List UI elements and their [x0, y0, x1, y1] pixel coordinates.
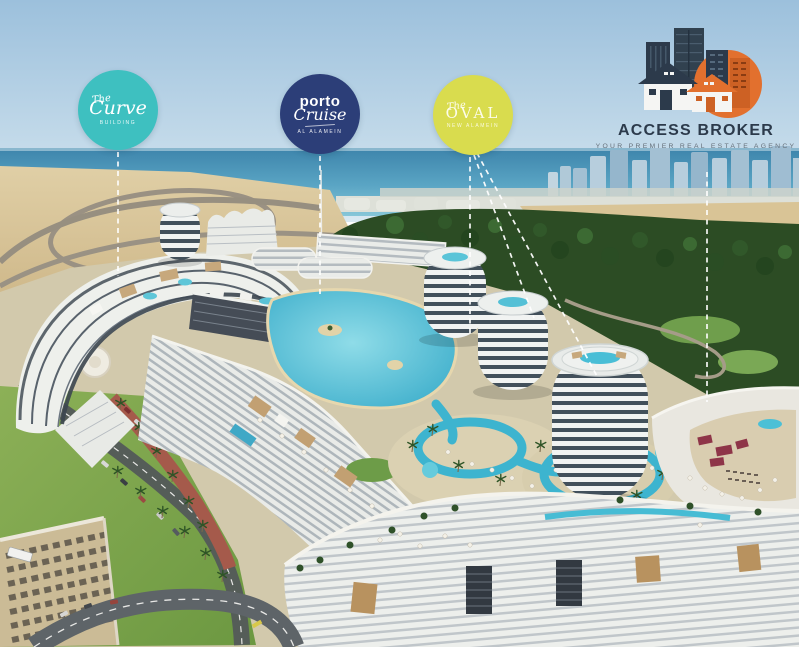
access-broker-logo: ACCESS BROKER YOUR PREMIER REAL ESTATE A…	[600, 26, 792, 150]
broker-logo-graphic	[616, 26, 776, 126]
badge-curve-sub: BUILDING	[100, 121, 136, 126]
badge-porto-sub: AL ALAMEIN	[298, 130, 343, 135]
badge-porto-rule	[305, 123, 335, 126]
badge-porto-line2: Cruise	[294, 107, 347, 123]
marketing-image: The Curve BUILDING porto Cruise AL ALAME…	[0, 0, 799, 647]
broker-logo-title: ACCESS BROKER	[618, 122, 774, 140]
badge-the-curve: The Curve BUILDING	[78, 70, 158, 150]
broker-logo-tagline: YOUR PREMIER REAL ESTATE AGENCY	[596, 143, 797, 150]
badge-oval-pre: The	[447, 100, 467, 113]
badge-porto-cruise: porto Cruise AL ALAMEIN	[280, 74, 360, 154]
badge-curve-pre: The	[92, 93, 112, 106]
badge-the-oval: The OVAL NEW ALAMEIN	[433, 75, 513, 155]
badge-oval-sub: NEW ALAMEIN	[447, 124, 499, 129]
logo-skyline-icon	[638, 28, 762, 118]
